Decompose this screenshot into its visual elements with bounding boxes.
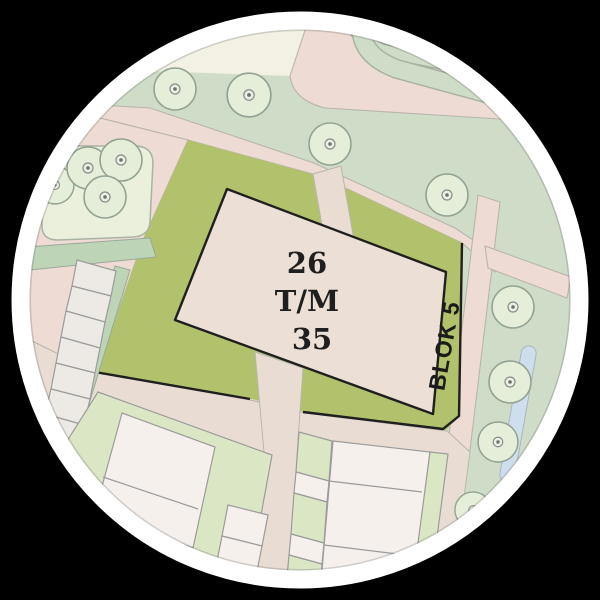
site-plan-screenshot: 26 T/M 35 BLOK 5 — [0, 0, 600, 600]
tree-icon — [426, 174, 468, 216]
tree-icon — [227, 73, 271, 117]
units-line-1: 26 — [287, 246, 327, 280]
tree-icon — [84, 176, 126, 218]
tree-icon — [478, 422, 518, 462]
tree-icon — [154, 68, 196, 110]
units-line-2: T/M — [275, 284, 339, 318]
site-plan-map: 26 T/M 35 BLOK 5 — [0, 0, 600, 600]
tree-icon — [492, 286, 534, 328]
tree-icon — [489, 361, 531, 403]
tree-icon — [309, 123, 351, 165]
units-line-3: 35 — [292, 322, 332, 356]
tree-icon — [100, 139, 142, 181]
